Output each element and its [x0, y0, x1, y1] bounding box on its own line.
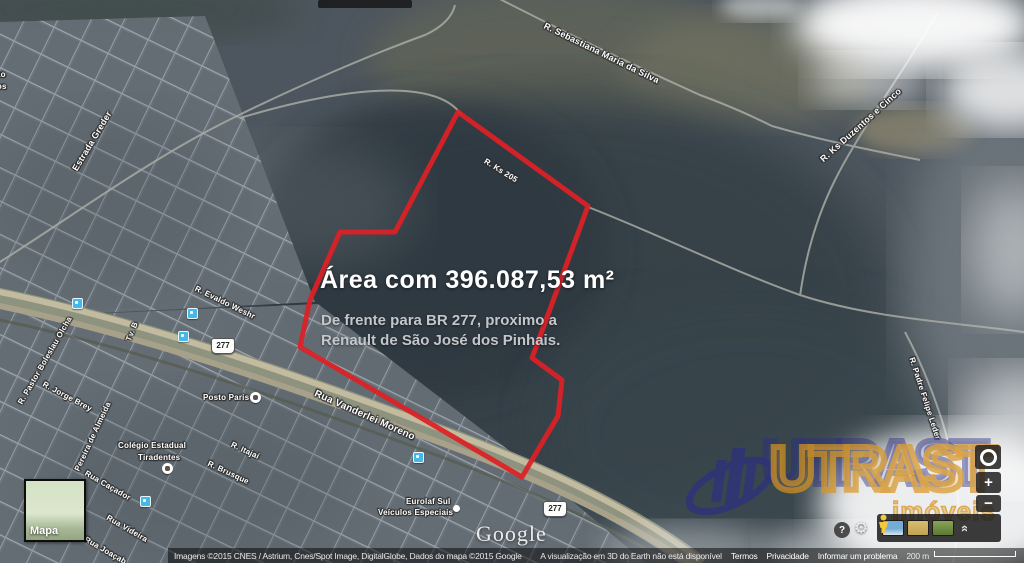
- scale-label: 200 m: [906, 551, 929, 561]
- imagery-carousel[interactable]: »: [877, 514, 1001, 542]
- poi-label: Tiradentes: [138, 453, 180, 462]
- school-icon[interactable]: [162, 463, 173, 474]
- attribution-bar: Imagens ©2015 CNES / Astrium, Cnes/Spot …: [168, 548, 1024, 563]
- report-problem-link[interactable]: Informar um problema: [818, 551, 898, 561]
- poi-label: Eurolaf Sul: [406, 497, 450, 506]
- earth-3d-notice: A visualização em 3D do Earth não está d…: [540, 551, 722, 561]
- poi-label: Colégio Estadual: [118, 441, 186, 450]
- imagery-thumbnail-grass[interactable]: [933, 521, 953, 535]
- street-label: tos: [0, 82, 7, 91]
- gas-station-icon[interactable]: [250, 392, 261, 403]
- terms-link[interactable]: Termos: [731, 551, 758, 561]
- area-annotation-subtitle: De frente para BR 277, proximo a Renault…: [321, 311, 560, 351]
- map-canvas[interactable]: R. Sebastiana Maria da Silva R. Ks Duzen…: [0, 0, 1024, 563]
- imagery-thumbnail-sand[interactable]: [908, 521, 928, 535]
- poi-label: Posto Paris: [203, 393, 249, 402]
- zoom-out-button[interactable]: −: [976, 495, 1001, 512]
- zoom-in-button[interactable]: +: [976, 472, 1001, 493]
- business-icon[interactable]: [453, 505, 460, 512]
- map-mode-label: Mapa: [30, 525, 58, 537]
- transit-stop-icon[interactable]: [187, 308, 198, 319]
- br277-shield: 277: [211, 338, 235, 354]
- map-mode-toggle[interactable]: Mapa: [24, 479, 86, 542]
- area-annotation-title: Área com 396.087,53 m²: [320, 266, 615, 295]
- pegman-icon[interactable]: [877, 514, 890, 534]
- scale-control[interactable]: 200 m: [906, 551, 1016, 561]
- imagery-attribution: Imagens ©2015 CNES / Astrium, Cnes/Spot …: [174, 551, 522, 561]
- poi-label: Veículos Especiais: [378, 508, 453, 517]
- brand-name: UTRAST: [770, 434, 991, 505]
- annotation-line2: Renault de São José dos Pinhais.: [321, 331, 560, 351]
- help-button[interactable]: ?: [834, 522, 850, 538]
- cropped-label-remnant: [318, 0, 412, 8]
- transit-stop-icon[interactable]: [178, 331, 189, 342]
- photosphere-button[interactable]: [975, 445, 1001, 469]
- scale-bar: [934, 551, 1016, 557]
- google-logo: Google: [476, 521, 547, 547]
- photosphere-icon: [980, 449, 997, 466]
- privacy-link[interactable]: Privacidade: [767, 551, 809, 561]
- transit-stop-icon[interactable]: [413, 452, 424, 463]
- annotation-line1: De frente para BR 277, proximo a: [321, 311, 560, 331]
- transit-stop-icon[interactable]: [72, 298, 83, 309]
- collapse-carousel-icon[interactable]: »: [956, 524, 971, 531]
- street-label: ão: [0, 70, 6, 79]
- br277-shield: 277: [543, 501, 567, 517]
- gear-icon[interactable]: ⚙: [854, 518, 868, 538]
- transit-stop-icon[interactable]: [140, 496, 151, 507]
